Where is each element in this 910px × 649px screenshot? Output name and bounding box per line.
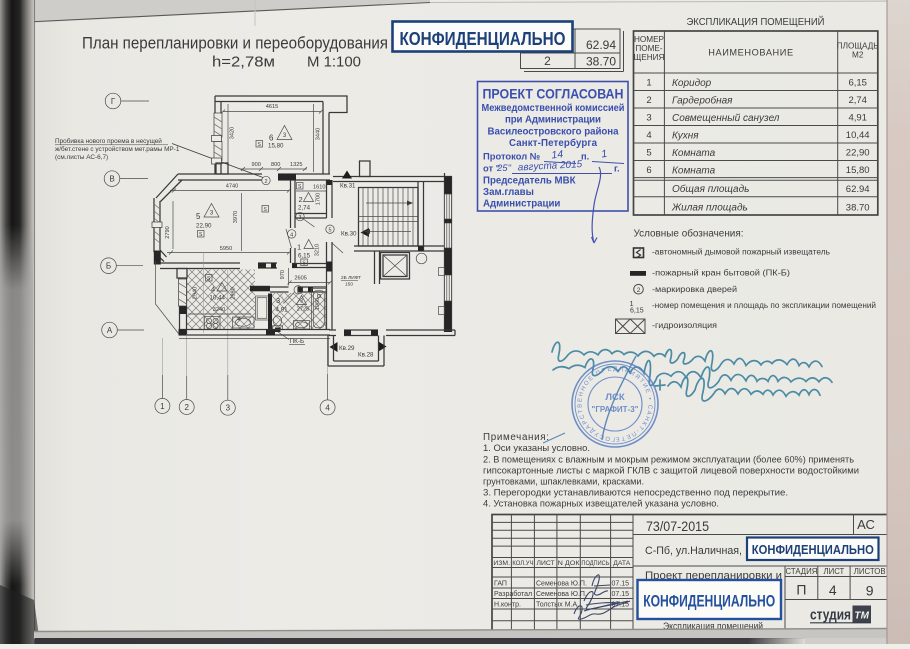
svg-text:6: 6 (646, 165, 651, 176)
svg-text:ж/бет.стене с устройством мет.: ж/бет.стене с устройством мет.рамы МР-1 (55, 145, 180, 153)
svg-text:Администрации: Администрации (483, 199, 560, 210)
svg-text:4: 4 (646, 130, 651, 141)
svg-text:КОЛ.УЧ: КОЛ.УЧ (512, 560, 533, 567)
svg-text:М 1:100: М 1:100 (307, 55, 361, 71)
svg-text:Василеостровского района: Василеостровского района (488, 127, 620, 138)
svg-text:2725: 2725 (297, 307, 309, 313)
svg-text:22,90: 22,90 (196, 223, 212, 230)
svg-text:1: 1 (297, 288, 300, 294)
svg-text:3240: 3240 (213, 307, 225, 313)
svg-text:73/07-2015: 73/07-2015 (646, 519, 709, 535)
svg-text:Кв.29: Кв.29 (339, 345, 355, 352)
svg-text:Г: Г (111, 97, 116, 106)
svg-text:4: 4 (290, 232, 293, 238)
svg-text:АС: АС (857, 517, 875, 532)
svg-text:-номер помещения и площадь по: -номер помещения и площадь по экспликаци… (652, 301, 876, 310)
svg-text:38.70: 38.70 (586, 55, 616, 69)
svg-text:Семенова Ю.П.: Семенова Ю.П. (536, 591, 587, 598)
svg-text:Условные обозначения:: Условные обозначения: (634, 228, 744, 240)
svg-text:62.94: 62.94 (846, 184, 870, 195)
svg-text:3: 3 (300, 299, 303, 305)
svg-text:-гидроизоляция: -гидроизоляция (652, 321, 717, 330)
svg-text:25": 25" (496, 163, 512, 174)
svg-text:Семенова Ю.П.: Семенова Ю.П. (536, 581, 587, 588)
svg-text:62.94: 62.94 (586, 38, 616, 52)
svg-text:2980: 2980 (231, 287, 237, 299)
svg-text:ИЗМ.: ИЗМ. (493, 560, 510, 567)
svg-text:Гардеробная: Гардеробная (672, 95, 733, 107)
svg-text:3420: 3420 (230, 127, 236, 139)
svg-text:2,74: 2,74 (298, 205, 311, 212)
svg-text:4,91: 4,91 (848, 113, 867, 124)
svg-text:Б: Б (106, 262, 111, 271)
svg-text:2940: 2940 (193, 287, 199, 299)
svg-text:150: 150 (345, 282, 353, 288)
svg-text:ПРОЕКТ СОГЛАСОВАН: ПРОЕКТ СОГЛАСОВАН (483, 86, 624, 102)
svg-text:3: 3 (298, 215, 301, 221)
svg-text:4. Установка пожарных извещ: 4. Установка пожарных извещателей указан… (483, 498, 719, 509)
svg-text:15,80: 15,80 (846, 165, 870, 176)
svg-text:А: А (107, 326, 113, 335)
svg-text:2: 2 (544, 54, 551, 68)
svg-text:3210: 3210 (315, 244, 321, 256)
svg-text:Протокол №: Протокол № (483, 151, 541, 162)
svg-text:38.70: 38.70 (846, 203, 870, 214)
svg-text:ДАТА: ДАТА (613, 560, 631, 567)
svg-text:1610: 1610 (313, 185, 325, 191)
svg-text:студия: студия (810, 608, 851, 624)
svg-text:4: 4 (211, 285, 215, 294)
svg-text:План перепланировки и переобор: План перепланировки и переоборудования (82, 34, 388, 53)
svg-text:4: 4 (325, 403, 330, 412)
svg-text:10,44: 10,44 (846, 130, 870, 141)
svg-text:(см.листы АС-6,7): (см.листы АС-6,7) (55, 154, 108, 161)
svg-text:6: 6 (269, 134, 274, 143)
svg-text:07.15: 07.15 (612, 581, 630, 588)
svg-text:6,15: 6,15 (848, 78, 867, 89)
svg-text:4615: 4615 (266, 104, 278, 110)
svg-text:3. Перегородки устанавливают: 3. Перегородки устанавливаются непосредс… (483, 487, 788, 498)
svg-text:Совмещенный санузел: Совмещенный санузел (672, 113, 780, 124)
svg-text:4: 4 (829, 582, 837, 598)
svg-text:ПК-Б: ПК-Б (290, 338, 305, 345)
svg-text:ЛИСТ: ЛИСТ (537, 560, 555, 567)
svg-text:Кв.30: Кв.30 (341, 231, 357, 238)
svg-text:1. Оси указаны условно.: 1. Оси указаны условно. (483, 442, 590, 453)
svg-text:Кв.28: Кв.28 (358, 352, 374, 359)
svg-text:3: 3 (276, 296, 280, 305)
svg-text:"ГРАФИТ-3": "ГРАФИТ-3" (592, 405, 639, 414)
svg-text:КОНФИДЕНЦИАЛЬНО: КОНФИДЕНЦИАЛЬНО (643, 593, 775, 611)
svg-text:Зам.главы: Зам.главы (483, 187, 534, 198)
svg-text:КОНФИДЕНЦИАЛЬНО: КОНФИДЕНЦИАЛЬНО (752, 542, 874, 557)
svg-text:10,44: 10,44 (210, 295, 226, 302)
svg-text:Кв.31: Кв.31 (340, 183, 356, 190)
svg-text:2: 2 (264, 179, 267, 185)
svg-text:грунтовками, шпаклевками, кр: грунтовками, шпаклевками, красками. (483, 476, 644, 487)
svg-text:1: 1 (646, 78, 651, 89)
svg-text:5950: 5950 (220, 246, 232, 252)
svg-text:при Администрации: при Администрации (505, 115, 601, 126)
svg-text:900: 900 (252, 162, 261, 168)
svg-text:9: 9 (866, 583, 874, 599)
svg-text:1: 1 (297, 243, 301, 252)
svg-text:ЛИСТОВ: ЛИСТОВ (854, 567, 886, 576)
svg-text:ПОДПИСЬ: ПОДПИСЬ (581, 560, 609, 567)
svg-text:ТМ: ТМ (854, 611, 869, 622)
svg-text:22,90: 22,90 (846, 148, 870, 159)
svg-text:Разработал: Разработал (494, 590, 532, 598)
svg-text:15,80: 15,80 (268, 143, 284, 150)
svg-text:4,91: 4,91 (276, 307, 289, 314)
svg-text:2,74: 2,74 (848, 95, 867, 106)
svg-text:НАИМЕНОВАНИЕ: НАИМЕНОВАНИЕ (708, 48, 793, 58)
svg-text:Комната: Комната (672, 166, 716, 177)
svg-text:ЩЕНИЯ: ЩЕНИЯ (634, 53, 665, 62)
svg-text:ЭКСПЛИКАЦИЯ ПОМЕЩЕНИЙ: ЭКСПЛИКАЦИЯ ПОМЕЩЕНИЙ (687, 15, 825, 28)
svg-text:ГАП: ГАП (494, 581, 507, 588)
svg-text:2: 2 (646, 95, 651, 106)
svg-text:h=2,78м: h=2,78м (212, 55, 275, 71)
svg-text:5: 5 (646, 148, 651, 159)
svg-text:В: В (109, 175, 114, 184)
svg-text:2605: 2605 (294, 276, 306, 282)
svg-text:3440: 3440 (316, 128, 322, 140)
svg-text:С-Пб, ул.Наличная,: С-Пб, ул.Наличная, (645, 545, 742, 557)
svg-text:п.: п. (581, 151, 589, 162)
svg-text:Пробивка нового проема в несущ: Пробивка нового проема в несущей (55, 137, 162, 145)
svg-text:N ДОК: N ДОК (558, 560, 580, 567)
svg-text:3970: 3970 (233, 211, 239, 223)
svg-text:5: 5 (328, 228, 331, 234)
svg-text:2: 2 (184, 403, 189, 412)
svg-text:НОМЕР: НОМЕР (634, 35, 665, 44)
svg-text:гипсокартонные листы с марк: гипсокартонные листы с маркой ГКЛВ с защ… (483, 465, 859, 476)
svg-text:Межведомственной комиссией: Межведомственной комиссией (482, 103, 625, 114)
svg-text:-пожарный кран бытовой (ПК-Б): -пожарный кран бытовой (ПК-Б) (652, 269, 790, 278)
svg-text:Н.контр.: Н.контр. (494, 602, 521, 609)
svg-text:М2: М2 (852, 51, 864, 60)
svg-text:Коридор: Коридор (672, 78, 712, 89)
svg-text:Кухня: Кухня (672, 131, 699, 142)
svg-text:г.: г. (614, 163, 620, 174)
svg-text:Председатель МВК: Председатель МВК (483, 176, 576, 187)
svg-text:2: 2 (299, 195, 303, 204)
svg-text:2. В помещениях с влажным: 2. В помещениях с влажным и мокрым режим… (483, 454, 854, 465)
svg-text:6,15: 6,15 (298, 253, 311, 260)
svg-text:П: П (796, 582, 806, 598)
svg-text:Общая площадь: Общая площадь (672, 183, 749, 195)
svg-text:ЛСК: ЛСК (605, 392, 625, 403)
svg-text:Жилая площадь: Жилая площадь (671, 203, 748, 214)
svg-text:1960: 1960 (315, 298, 321, 310)
svg-text:ПОМЕ-: ПОМЕ- (635, 44, 663, 53)
svg-text:4740: 4740 (226, 184, 238, 190)
svg-text:-маркировка дверей: -маркировка дверей (652, 285, 737, 294)
svg-text:3: 3 (226, 404, 231, 413)
svg-text:Санкт-Петербурга: Санкт-Петербурга (509, 138, 598, 149)
svg-text:1700: 1700 (316, 193, 322, 205)
svg-text:КОНФИДЕНЦИАЛЬНО: КОНФИДЕНЦИАЛЬНО (400, 28, 566, 49)
svg-text:ЛИСТ: ЛИСТ (823, 567, 844, 576)
svg-text:07.15: 07.15 (612, 591, 630, 598)
svg-text:1: 1 (160, 402, 165, 411)
svg-text:800: 800 (271, 162, 280, 168)
svg-text:2: 2 (637, 287, 641, 294)
svg-text:ПЛОЩАДЬ: ПЛОЩАДЬ (837, 42, 879, 51)
svg-text:6,15: 6,15 (630, 308, 644, 315)
svg-text:Комната: Комната (672, 148, 716, 159)
svg-text:1325: 1325 (290, 162, 302, 168)
svg-text:Толстых М.А.: Толстых М.А. (536, 602, 579, 609)
svg-text:СТАДИЯ: СТАДИЯ (785, 567, 817, 576)
svg-text:3: 3 (646, 113, 651, 124)
svg-text:2790: 2790 (165, 226, 171, 238)
svg-text:970: 970 (280, 270, 286, 279)
svg-text:5: 5 (196, 212, 201, 221)
svg-text:-автономный дымовой пожарный и: -автономный дымовой пожарный извещатель (652, 248, 830, 257)
